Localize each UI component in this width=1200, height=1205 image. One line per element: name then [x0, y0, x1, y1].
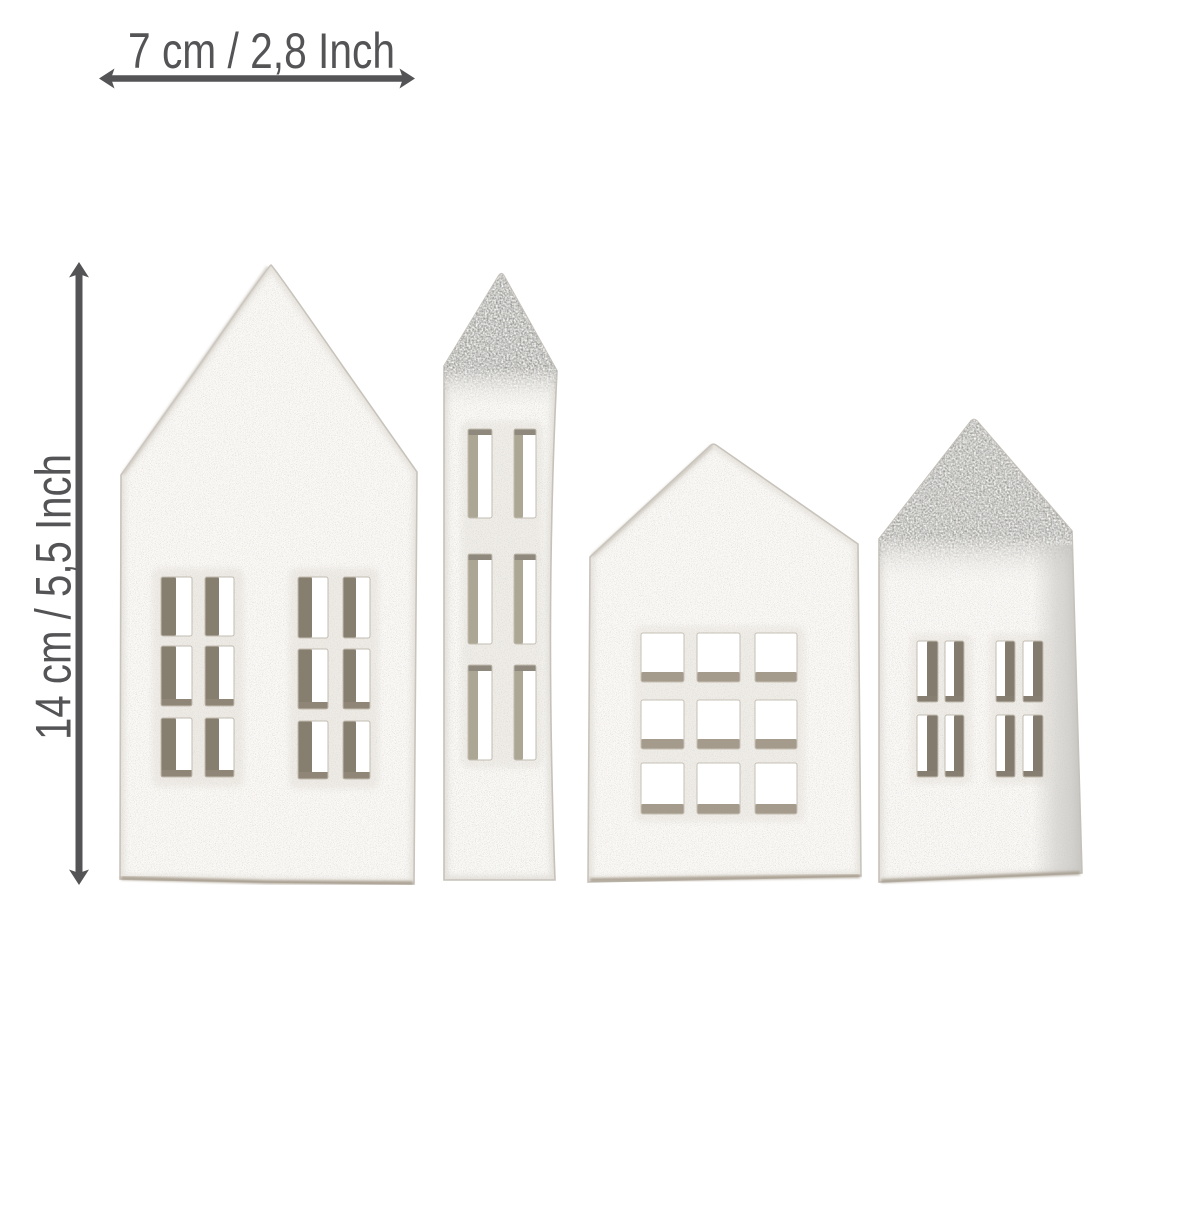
svg-text:14 cm / 5,5 Inch: 14 cm / 5,5 Inch	[26, 454, 82, 740]
svg-text:7 cm / 2,8 Inch: 7 cm / 2,8 Inch	[128, 23, 395, 79]
